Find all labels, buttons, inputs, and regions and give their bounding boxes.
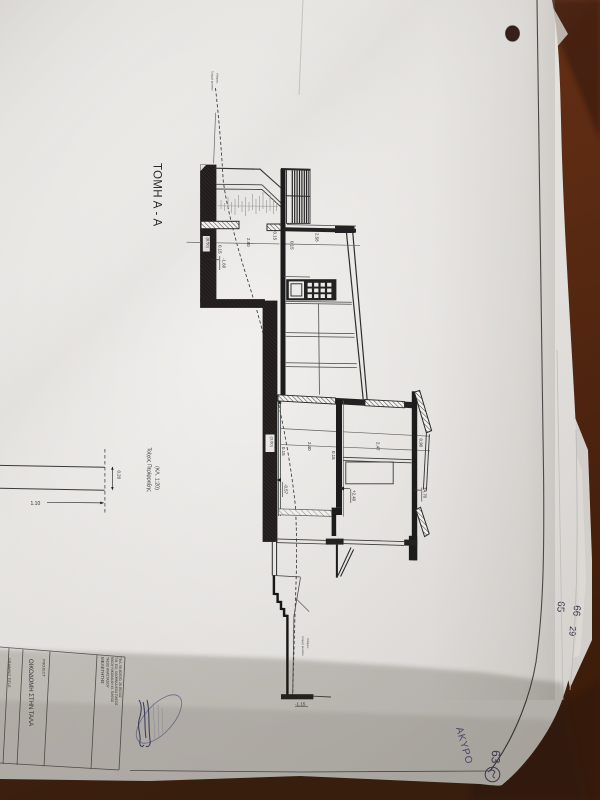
svg-text:Γραμμή φυσικού: Γραμμή φυσικού bbox=[301, 636, 305, 656]
svg-text:0.20: 0.20 bbox=[116, 471, 121, 480]
svg-text:29: 29 bbox=[567, 626, 578, 637]
svg-text:2.58: 2.58 bbox=[315, 233, 320, 242]
svg-text:2.40: 2.40 bbox=[307, 442, 312, 451]
svg-text:0.15: 0.15 bbox=[273, 232, 278, 241]
svg-text:2.80: 2.80 bbox=[246, 238, 251, 247]
svg-text:(ΚΛ. 1:20): (ΚΛ. 1:20) bbox=[154, 466, 160, 490]
svg-text:0.90: 0.90 bbox=[419, 439, 424, 448]
svg-text:-1.60: -1.60 bbox=[222, 258, 227, 269]
svg-text:-0.57: -0.57 bbox=[284, 484, 289, 495]
svg-text:0.15: 0.15 bbox=[331, 451, 336, 460]
svg-text:Γραμμή φυσικού: Γραμμή φυσικού bbox=[211, 71, 215, 91]
svg-text:(3.60): (3.60) bbox=[270, 437, 275, 448]
svg-text:εδάφους: εδάφους bbox=[216, 73, 220, 84]
svg-text:0.15: 0.15 bbox=[290, 241, 295, 250]
svg-text:ΤΟΜΗ Α - Α: ΤΟΜΗ Α - Α bbox=[151, 163, 163, 227]
svg-text:1.10: 1.10 bbox=[31, 501, 41, 507]
svg-text:2.47: 2.47 bbox=[376, 442, 381, 451]
svg-text:0.15: 0.15 bbox=[281, 447, 286, 456]
svg-text:66: 66 bbox=[570, 605, 582, 617]
svg-text:(8.50): (8.50) bbox=[206, 238, 211, 249]
svg-text:εδάφους: εδάφους bbox=[306, 638, 310, 649]
svg-text:+4.70: +4.70 bbox=[423, 487, 428, 499]
svg-text:65: 65 bbox=[554, 601, 566, 613]
svg-text:+2.40: +2.40 bbox=[352, 490, 357, 502]
svg-text:0.15: 0.15 bbox=[218, 245, 223, 254]
svg-text:Τοίχος Περίφραξης: Τοίχος Περίφραξης bbox=[146, 448, 152, 493]
